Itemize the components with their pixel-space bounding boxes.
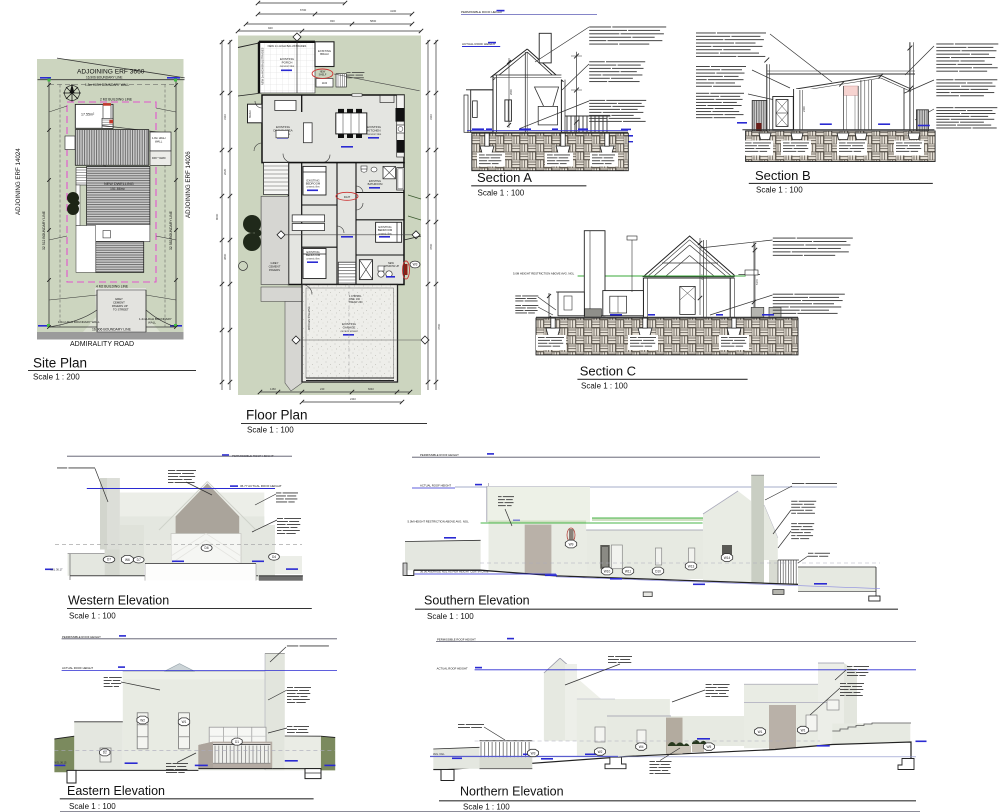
svg-text:32 582 BOUNDARY LINE: 32 582 BOUNDARY LINE xyxy=(169,210,173,250)
svg-text:Northern Elevation: Northern Elevation xyxy=(460,785,564,799)
svg-text:NGL 36.15: NGL 36.15 xyxy=(54,762,67,765)
svg-text:Eastern Elevation: Eastern Elevation xyxy=(67,784,165,798)
svg-text:2600: 2600 xyxy=(509,89,513,95)
svg-text:6640: 6640 xyxy=(368,387,374,391)
svg-text:PERMISSIBLE ROOF HEIGHT: PERMISSIBLE ROOF HEIGHT xyxy=(437,638,476,642)
svg-text:2620: 2620 xyxy=(223,168,227,175)
svg-text:BRAAI: BRAAI xyxy=(320,52,329,56)
svg-text:KITCHEN: KITCHEN xyxy=(367,129,380,133)
svg-text:36.06 AVERAGE NGL AS PER HEIGH: 36.06 AVERAGE NGL AS PER HEIGHT CERTIFIC… xyxy=(420,570,489,574)
svg-text:D2: D2 xyxy=(103,751,107,755)
svg-text:6700: 6700 xyxy=(300,8,307,12)
svg-text:4 M2 BUILDING LINE: 4 M2 BUILDING LINE xyxy=(96,285,129,289)
svg-text:Site Plan: Site Plan xyxy=(33,356,87,371)
svg-text:D10: D10 xyxy=(655,569,661,573)
svg-text:BATHROOM: BATHROOM xyxy=(368,182,383,186)
svg-text:Scale 1 : 100: Scale 1 : 100 xyxy=(756,186,803,195)
svg-text:NEW 1m HIGH BALUSTRADES: NEW 1m HIGH BALUSTRADES xyxy=(261,47,265,85)
svg-text:16,906 BOUNDARY LINE: 16,906 BOUNDARY LINE xyxy=(86,76,123,80)
svg-text:D7: D7 xyxy=(137,558,141,562)
svg-text:2 M2 BUILDING LINE: 2 M2 BUILDING LINE xyxy=(100,98,133,102)
svg-text:W10: W10 xyxy=(604,569,611,573)
svg-text:W5: W5 xyxy=(707,745,712,749)
svg-text:TO STREET: TO STREET xyxy=(113,308,129,312)
svg-text:2400: 2400 xyxy=(802,106,806,112)
svg-text:Floor Plan: Floor Plan xyxy=(246,408,308,423)
svg-text:SHELF: SHELF xyxy=(319,74,327,77)
svg-text:ACTUAL ROOF HEIGHT: ACTUAL ROOF HEIGHT xyxy=(437,667,468,671)
svg-text:3110: 3110 xyxy=(223,114,227,120)
svg-text:ceramic tiles: ceramic tiles xyxy=(367,132,382,136)
svg-text:4700: 4700 xyxy=(429,243,433,250)
svg-text:NEW 1m HIGH BALUSTRADES: NEW 1m HIGH BALUSTRADES xyxy=(268,44,307,48)
svg-text:W9: W9 xyxy=(569,542,574,546)
svg-text:1.8m HIGH: 1.8m HIGH xyxy=(152,136,165,140)
svg-text:W1: W1 xyxy=(758,730,763,734)
svg-text:930: 930 xyxy=(330,19,335,23)
svg-text:5170: 5170 xyxy=(755,279,759,285)
svg-text:3110: 3110 xyxy=(429,114,433,120)
svg-text:DRY YARD: DRY YARD xyxy=(152,156,166,160)
svg-text:17.55m²: 17.55m² xyxy=(81,113,95,117)
svg-text:DAIT: DAIT xyxy=(344,195,351,199)
svg-text:1100: 1100 xyxy=(322,82,328,85)
svg-text:ADJOINING ERF 3660: ADJOINING ERF 3660 xyxy=(77,69,145,76)
svg-text:36.77 ACTUAL ROOF HEIGHT: 36.77 ACTUAL ROOF HEIGHT xyxy=(240,484,282,488)
svg-text:5800: 5800 xyxy=(370,19,377,23)
svg-text:ceramic tiles: ceramic tiles xyxy=(306,257,320,260)
svg-text:Scale 1 : 100: Scale 1 : 100 xyxy=(581,382,628,391)
svg-text:D4: D4 xyxy=(272,555,276,559)
svg-text:ceramic tiles: ceramic tiles xyxy=(280,64,295,68)
svg-text:NGL 36.17: NGL 36.17 xyxy=(50,568,63,572)
svg-text:W11: W11 xyxy=(625,569,632,573)
svg-text:1.0m HIGH BOUNDARY WALL: 1.0m HIGH BOUNDARY WALL xyxy=(58,320,100,324)
svg-text:Scale 1 : 100: Scale 1 : 100 xyxy=(463,803,510,812)
svg-text:ADJOINING ERF 14026: ADJOINING ERF 14026 xyxy=(185,151,192,218)
svg-text:W6: W6 xyxy=(125,558,130,562)
svg-text:ACTUAL ROOF HEIGHT: ACTUAL ROOF HEIGHT xyxy=(62,666,93,670)
svg-text:W13: W13 xyxy=(688,564,695,568)
svg-text:ADJOINING ERF 14024: ADJOINING ERF 14024 xyxy=(15,148,22,215)
svg-text:240: 240 xyxy=(320,387,325,391)
svg-text:W1: W1 xyxy=(182,720,187,724)
svg-text:4700: 4700 xyxy=(437,323,441,330)
svg-text:W2: W2 xyxy=(140,718,145,722)
svg-text:cement screed: cement screed xyxy=(340,329,358,333)
svg-text:1460: 1460 xyxy=(270,387,276,391)
svg-text:5.0M HEIGHT RESTRICTION ABOVE: 5.0M HEIGHT RESTRICTION ABOVE AVG. NGL xyxy=(513,272,575,276)
svg-text:ADMIRALITY ROAD: ADMIRALITY ROAD xyxy=(70,341,134,348)
svg-text:3800: 3800 xyxy=(223,253,227,260)
svg-text:151.86m²: 151.86m² xyxy=(110,187,126,191)
svg-text:TREAD: 260: TREAD: 260 xyxy=(349,301,363,304)
svg-text:8000: 8000 xyxy=(215,213,219,220)
svg-text:W1: W1 xyxy=(801,728,806,732)
svg-text:Southern Elevation: Southern Elevation xyxy=(424,594,530,608)
svg-text:BRAAI: BRAAI xyxy=(249,110,252,118)
svg-text:4100: 4100 xyxy=(390,9,397,13)
svg-text:Scale 1 : 100: Scale 1 : 100 xyxy=(247,426,294,435)
svg-text:940: 940 xyxy=(268,26,273,30)
svg-text:W3: W3 xyxy=(413,263,418,267)
svg-text:5.0M HEIGHT RESTRICTION ABOVE: 5.0M HEIGHT RESTRICTION ABOVE AVG. NGL xyxy=(408,519,470,523)
svg-text:PAVERS: PAVERS xyxy=(269,268,280,272)
svg-text:Section C: Section C xyxy=(580,364,636,379)
svg-text:Scale 1 : 100: Scale 1 : 100 xyxy=(69,612,116,621)
svg-text:WALL: WALL xyxy=(155,140,163,144)
svg-text:W3: W3 xyxy=(531,751,536,755)
svg-text:32 512 BOUNDARY LINE: 32 512 BOUNDARY LINE xyxy=(42,210,46,250)
svg-text:NEW DWELLING: NEW DWELLING xyxy=(104,182,134,186)
svg-text:Scale 1 : 100: Scale 1 : 100 xyxy=(478,189,525,198)
svg-text:W4: W4 xyxy=(639,745,644,749)
svg-text:WINDOW UP: WINDOW UP xyxy=(384,265,399,268)
svg-text:16 906 BOUNDARY LINE: 16 906 BOUNDARY LINE xyxy=(92,328,132,332)
svg-text:W2: W2 xyxy=(598,750,603,754)
svg-text:ceramic tiles: ceramic tiles xyxy=(306,186,320,189)
svg-text:Section B: Section B xyxy=(755,168,811,183)
svg-text:Scale 1 : 100: Scale 1 : 100 xyxy=(427,612,474,621)
svg-text:WOODEN SHELVING: WOODEN SHELVING xyxy=(308,306,311,330)
svg-text:D6: D6 xyxy=(205,546,209,550)
svg-text:1.8m HIGH BOUNDARY WALL: 1.8m HIGH BOUNDARY WALL xyxy=(85,83,129,87)
svg-text:W14: W14 xyxy=(724,556,731,560)
svg-text:WALL: WALL xyxy=(148,321,156,325)
svg-text:AVG. NGL: AVG. NGL xyxy=(433,753,445,756)
svg-text:2567: 2567 xyxy=(700,274,704,280)
svg-text:D1: D1 xyxy=(235,740,239,744)
svg-text:D7: D7 xyxy=(107,558,111,562)
svg-text:ACTUAL ROOF HEIGHT: ACTUAL ROOF HEIGHT xyxy=(420,484,451,488)
svg-text:Section A: Section A xyxy=(477,170,532,185)
svg-text:PERMISSIBLE ROOF HEIGHT: PERMISSIBLE ROOF HEIGHT xyxy=(420,453,459,457)
svg-text:PERMISSIBLE ROOF HEIGHT: PERMISSIBLE ROOF HEIGHT xyxy=(62,635,101,639)
svg-text:Scale 1 : 100: Scale 1 : 100 xyxy=(69,802,116,811)
svg-text:Scale 1 : 200: Scale 1 : 200 xyxy=(33,373,80,382)
svg-text:PORCH: PORCH xyxy=(282,61,293,65)
svg-text:Western Elevation: Western Elevation xyxy=(68,594,169,608)
svg-text:2440: 2440 xyxy=(350,397,356,401)
